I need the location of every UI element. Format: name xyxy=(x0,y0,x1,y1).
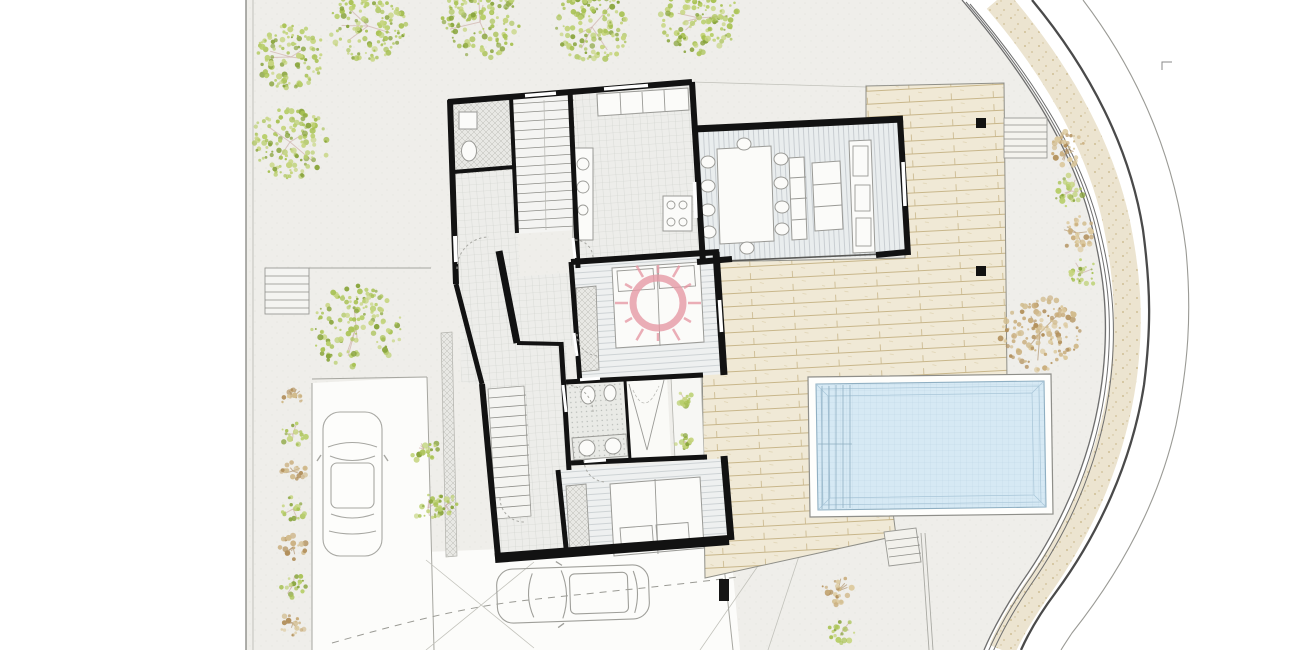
swimming-pool xyxy=(808,374,1053,517)
gate-post xyxy=(719,579,729,601)
driveway-area xyxy=(425,540,740,650)
wardrobe-2 xyxy=(566,484,590,555)
wc-floor xyxy=(452,97,514,175)
wc-sink xyxy=(459,112,477,129)
entry-hall-floor xyxy=(456,170,520,281)
car-top-view-parked xyxy=(317,412,388,556)
site-plan-svg xyxy=(0,0,1300,650)
site-plan xyxy=(0,0,1300,650)
media-shelf xyxy=(849,140,875,253)
sofa xyxy=(812,161,843,231)
garden-steps xyxy=(265,268,309,314)
stair-hall-floor xyxy=(510,90,576,234)
sideboard xyxy=(789,157,807,240)
survey-corner-mark xyxy=(1162,62,1172,70)
wc-toilet xyxy=(462,141,477,161)
deck-steps-bottom xyxy=(884,528,921,566)
deck-steps-top xyxy=(1004,118,1047,158)
